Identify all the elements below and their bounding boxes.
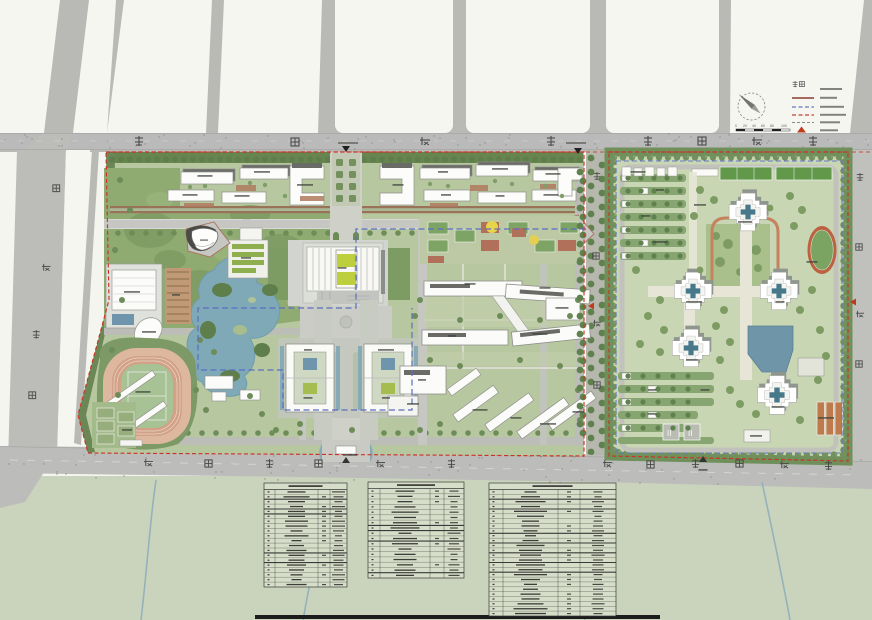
svg-text:60: 60 — [761, 124, 765, 128]
svg-text:20: 20 — [743, 124, 747, 128]
svg-text:II: II — [667, 429, 671, 438]
svg-text:40: 40 — [752, 124, 756, 128]
svg-text:100: 100 — [781, 124, 787, 128]
svg-text:80: 80 — [770, 124, 774, 128]
svg-text:0: 0 — [735, 124, 737, 128]
